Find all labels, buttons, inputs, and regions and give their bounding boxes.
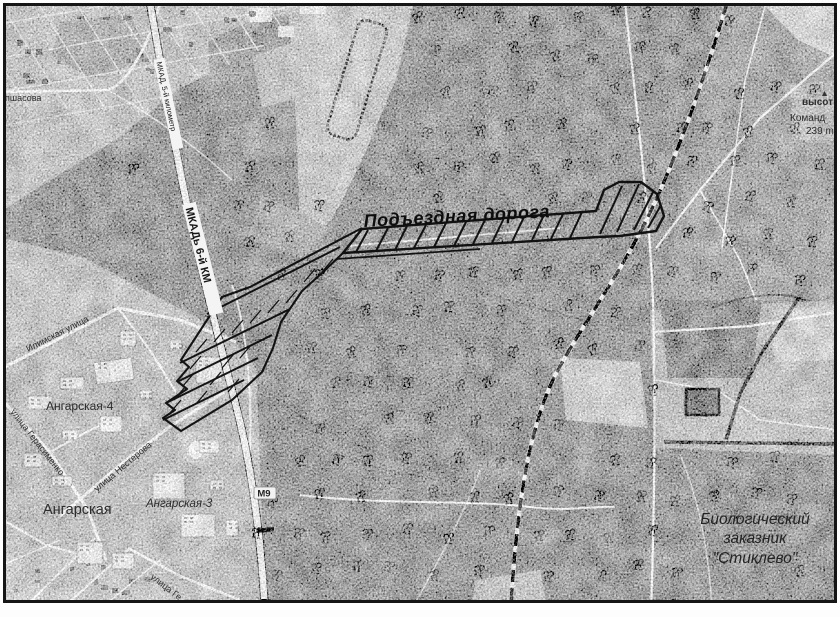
svg-text:Ангарская-4: Ангарская-4	[46, 399, 114, 413]
svg-text:"Стиклево": "Стиклево"	[713, 550, 799, 567]
svg-text:М9: М9	[257, 489, 270, 500]
svg-text:Биологический: Биологический	[700, 511, 810, 528]
svg-text:пшасова: пшасова	[5, 93, 41, 103]
svg-text:заказник: заказник	[723, 530, 788, 547]
svg-text:Ангарская: Ангарская	[43, 502, 112, 518]
svg-text:высот: высот	[802, 97, 833, 108]
svg-text:239 m: 239 m	[806, 126, 834, 137]
svg-text:Команд: Команд	[790, 113, 825, 124]
svg-text:Ангарская-3: Ангарская-3	[145, 498, 213, 510]
